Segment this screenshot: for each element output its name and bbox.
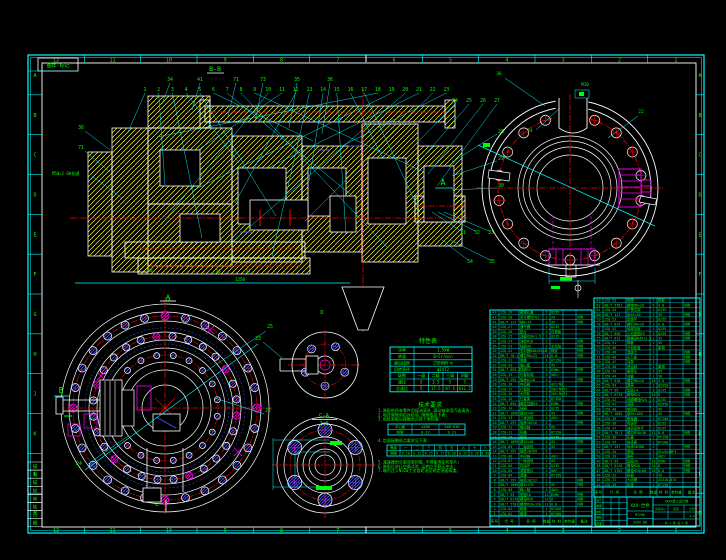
bom-cell: 2 [545,450,547,454]
bom-header-cell: 单件重 [671,490,682,495]
bom-cell: 16 [651,393,655,397]
tech-table-cell: 侧隙 [390,451,397,456]
bom-cell: 40Cr [551,488,559,492]
bom-cell: JZQ-11 [500,431,512,435]
bom-cell: 45 [596,478,600,482]
zone-letter-left: D [33,192,36,198]
bom-cell: 3 [545,387,547,391]
bom-cell: 1 [545,426,547,430]
binding-strip-cell: 期 [33,521,38,527]
bom-cell: 5 [493,493,495,497]
bom-cell: 79 [596,318,600,322]
bom-cell: 49 [596,459,600,463]
part-callout: 11 [279,87,285,93]
part-callout: 13 [307,87,313,93]
bom-cell: 17 [492,435,496,439]
bom-cell: JZQ-39 [604,417,616,421]
bom-cell: GB/T 5782 [604,469,622,473]
bom-cell: 1 [652,417,654,421]
bom-cell: 27 [492,387,496,391]
bom-cell: QT450 [551,397,561,401]
bom-cell: 45 [658,407,662,411]
bom-cell: 45 [551,440,555,444]
bom-cell: 毡圈40 [520,343,531,348]
bom-cell: 外购 [577,343,583,348]
bom-cell: 油泵 [627,359,634,364]
bom-cell: 45 [658,412,662,416]
bom-cell: 52 [596,445,600,449]
bom-cell: 40Cr [551,373,559,377]
bom-cell: 43 [492,311,496,315]
tech-table-cell: 五 [450,446,454,450]
char-cell: 速比 [398,379,406,385]
bom-cell: 74 [596,341,600,345]
zone-letter-left: A [33,73,36,79]
bom-cell: 1 [545,474,547,478]
bom-cell: 3 [652,322,654,326]
bom-cell: GB/T 95 [604,388,618,392]
bom-cell: 45 [551,426,555,430]
bom-cell: GB/T 819 [604,322,620,326]
big-view-c-label: C [155,500,159,508]
bom-cell: 挡圈 [520,406,527,411]
bom-cell: JZQ-17 [500,387,512,391]
bom-cell: 1 [652,360,654,364]
bom-cell: 12 [544,493,548,497]
char-cell: 二级 [432,372,440,378]
bom-cell: 10 [492,469,496,473]
bom-cell: 轴承30212 [520,477,537,482]
bom-cell: 1 [652,346,654,350]
bom-cell: 12 [544,498,548,502]
bom-cell: 2 [652,445,654,449]
bom-cell: 1 [545,402,547,406]
bom-cell: 1 [545,325,547,329]
bom-cell: 64 [596,388,600,392]
bom-cell: 20CrMnTi [551,392,567,396]
bom-cell: 6 [652,303,654,307]
bom-cell: 键16×90 [520,410,534,415]
bom-cell: GB/T 5781 [604,303,622,307]
bom-cell: JZQ-02 [500,507,512,511]
bom-cell: 2 [493,507,495,511]
bom-cell: 1 [652,403,654,407]
bom-cell: 橡胶 [551,348,558,353]
bom-cell: 1 [652,365,654,369]
bom-cell: Q235 [551,464,559,468]
bom-cell: 1 [652,407,654,411]
bom-cell: HT200 [551,512,561,516]
bom-cell: HT150 [551,431,561,435]
bom-cell: 35 [658,336,662,340]
char-cell: 5 [449,380,452,385]
bom-cell: 1 [545,397,547,401]
bom-cell: 1 [545,416,547,420]
bom-cell: Q235 [658,332,666,336]
bom-cell: 羊毛毡 [551,343,562,348]
bom-cell: JZQ-24 [500,339,512,343]
bom-cell: GB/T 1096 [604,412,622,416]
bom-cell: 12 [544,502,548,506]
bom-cell: 箱盖 [520,506,527,511]
part-callout: 16 [348,87,354,93]
part-callout: 7 [226,87,229,93]
bom-cell: 1 [545,454,547,458]
char-cell: 87.5 [445,386,455,391]
bom-cell: 圆螺母M45×1.5 [627,335,651,340]
sheet-count: 共 1 张 第 1 张 [665,521,688,525]
bom-cell: 67 [596,374,600,378]
bom-cell: 78 [596,322,600,326]
tech-table-cell: 四 [439,446,443,450]
title-row-label: 校核 [596,510,602,514]
bom-cell: JZQ-34 [604,450,616,454]
bom-cell: 1 [652,299,654,303]
bom-cell: 2 [652,318,654,322]
bom-cell: Q235 [658,388,666,392]
bom-cell: 轴端挡板 [627,326,641,331]
bom-cell: 外购 [684,378,690,383]
bom-cell: GB/T 812 [604,336,620,340]
bom-cell: 外购 [684,302,690,307]
zone-letter-left: H [33,352,36,358]
bom-cell: 垫圈20 [627,458,638,463]
bom-cell: 65 [596,384,600,388]
zone-number-top: 1 [674,58,677,64]
bom-cell: 45 [551,411,555,415]
bom-cell: 38 [492,335,496,339]
bom-cell: JZQ-50 [604,346,616,350]
bom-cell: 1 [652,450,654,454]
bom-cell: 紫铜 [658,345,665,350]
bom-cell: GB/T 6170 [604,393,622,397]
zone-number-bottom: 5 [449,528,452,534]
flange-dir-label: A [441,178,446,187]
char-table-title: 特性表 [419,337,437,345]
char-cell: 17.5 [431,386,441,391]
bom-cell: JZQ-12 [500,426,512,430]
bom-cell: 垫圈24 [627,387,638,392]
part-callout: 36 [496,71,502,77]
part-callout: 71 [233,77,239,83]
bom-cell: 螺钉M10×30 [627,430,646,435]
bom-cell: JZQ-52 [604,327,616,331]
bom-cell: 65Mn [551,368,559,372]
bom-cell: 7 [493,483,495,487]
zone-number-bottom: 10 [166,528,172,534]
zone-letter-left: E [33,232,36,238]
bom-cell: JZQ-22 [500,349,512,353]
bom-cell: 止动垫圈45 [627,331,645,336]
bom-cell: 外购 [577,348,583,353]
bom-cell: JZQ-06 [500,464,512,468]
bom-cell: 外购 [577,420,583,425]
binding-strip-cell: 描 [33,463,38,470]
bom-cell: 16 [651,464,655,468]
bom-cell: 1 [545,363,547,367]
zone-number-bottom: 12 [53,528,59,534]
zone-letter-right: C [698,153,701,159]
tech-table-cell: 等级 [390,445,397,450]
bom-cell: GB/T 5782 [500,502,518,506]
bom-cell: 1 [545,431,547,435]
bom-cell: 45 [551,363,555,367]
bom-cell: 2 [652,436,654,440]
bom-cell: 12 [492,459,496,463]
bom-cell: 8 [658,393,660,397]
zone-letter-right: E [698,232,701,238]
bom-cell: 35 [658,370,662,374]
bom-cell: 外购 [577,482,583,487]
bom-cell: 外购 [684,392,690,397]
char-cell: 转速 [398,353,406,359]
tech-table-cell: 0.30 [481,452,489,456]
bom-cell: 垫圈16 [520,492,531,497]
zone-number-top: 9 [224,58,227,64]
bom-cell: GB/T 1096 [500,483,518,487]
bom-cell: GB/T 6170 [604,464,622,468]
bom-tables: 1JZQ-01箱体1HT2002JZQ-02箱盖1HT2003GB/T 5782… [490,298,700,526]
bom-cell: 40Cr [658,455,666,459]
bom-cell: 2 [652,440,654,444]
tech-table-cell: 二 [416,446,420,450]
char-cell: 5 [420,386,423,391]
bom-cell: 35 [658,313,662,317]
bom-cell: 1 [652,327,654,331]
bom-cell: 1 [652,384,654,388]
zone-number-bottom: 2 [618,528,621,534]
bom-cell: 47 [596,469,600,473]
bom-cell: 2 [652,313,654,317]
part-callout: 9 [253,87,256,93]
detail-title: C-A [319,413,330,419]
bom-cell: JZQ-38 [604,422,616,426]
bom-cell: HT150 [658,436,668,440]
bom-cell: Q235 [658,426,666,430]
bom-cell: 34 [492,354,496,358]
bom-cell: 2 [652,370,654,374]
binding-strip-cell: 核 [33,504,38,511]
bom-cell: 蜗轮 [627,449,634,454]
bom-cell: 轴承30209 [520,449,537,454]
tech-note-line: 7.箱内注入N320工业齿轮油至规定油面高度。 [378,467,460,473]
part-callout: 34 [167,77,173,83]
part-callout: 14 [320,87,326,93]
bom-cell: 螺栓M8×20 [627,302,644,307]
bom-cell: 20 [492,421,496,425]
bom-cell: 外购 [684,430,690,435]
zone-number-top: 2 [618,58,621,64]
main-section-view: 1234567891011121314151617181920212223344… [52,77,504,332]
tech-table-cell: 三 [427,446,431,450]
bom-cell: 1 [652,474,654,478]
bom-cell: GB/T 1096 [500,440,518,444]
char-cell: 功率 [398,347,406,353]
bom-cell: 4.8 [658,379,664,383]
bom-cell: 铝板 [658,298,665,303]
bom-cell: 8.8 [551,354,557,358]
bom-cell: JZQ-26 [500,330,512,334]
title-row-label: 批准 [596,521,602,525]
char-cell: φ1472 [437,367,450,372]
bom-cell: 71 [596,355,600,359]
bom-cell: 1 [652,351,654,355]
zone-number-bottom: 6 [393,528,396,534]
bom-cell: 轴承座 [627,439,638,444]
bom-cell: 77 [596,327,600,331]
bom-cell: JZQ-54 [604,308,616,312]
bom-cell: 65Mn [658,459,666,463]
bom-cell: 箱体 [520,511,527,516]
bom-cell: 外购 [577,501,583,506]
bom-cell: 24 [492,402,496,406]
bom-header-cell: 单件重 [564,519,575,524]
zone-number-bottom: 11 [109,528,115,534]
bom-cell: 弹性挡圈45 [520,401,538,406]
bom-cell: 4.8 [658,322,664,326]
bom-cell: 一级齿轮 [520,458,534,463]
bom-cell: Q235 [551,335,559,339]
bom-cell: 螺钉M6×20 [627,321,644,326]
bom-cell: JZQ-36 [604,436,616,440]
bom-cell: 外购 [577,477,583,482]
part-callout: 4 [185,87,188,93]
bom-cell: 8 [493,478,495,482]
bom-cell: 联轴器 [627,416,638,421]
bom-cell: JZQ-42 [604,398,616,402]
tech-table-cell: 八 [484,446,488,450]
part-callout: 5 [198,87,201,93]
cad-canvas[interactable]: 121110987654321121110987654321ABCDEFGHJK… [0,0,726,560]
bom-cell: 螺母M24 [627,392,640,397]
bom-cell: 螺栓M20×80 [627,468,646,473]
bom-cell: 36 [492,344,496,348]
part-callout: 24 [452,98,458,104]
bom-cell: 外购 [684,359,690,364]
bom-cell: 8.8 [551,502,557,506]
bom-cell: 挡油环 [520,463,531,468]
bom-cell: 销8×35 [520,319,532,324]
bom-cell: 10 [658,374,662,378]
top-note: M10 [581,82,589,87]
bom-cell: 1 [545,440,547,444]
bom-cell: 18 [492,431,496,435]
bom-cell: 2 [545,478,547,482]
bom-cell: GB/T 893.1 [500,368,520,372]
bom-cell: 外购 [577,319,583,324]
bom-cell: 70 [596,360,600,364]
bom-cell: GB/T 6170 [500,498,518,502]
bom-cell: 2 [545,320,547,324]
bom-cell: 1 [545,445,547,449]
part-callout: 73 [260,77,266,83]
bom-cell: 2 [652,308,654,312]
bom-cell: 行星轮 [520,386,531,391]
bom-cell: 压盖 [627,435,634,440]
part-callout: 19 [389,87,395,93]
zone-number-top: 6 [393,58,396,64]
bom-cell: 23 [492,407,496,411]
binding-strip-cell: 校 [33,487,38,494]
title-row-label: 制图 [596,504,602,508]
bom-cell: JZQ-13 [500,416,512,420]
bom-cell: 58 [596,417,600,421]
bom-cell: 油塞M20×1.5 [520,334,541,339]
bom-cell: Q235 [658,308,666,312]
bom-cell: 12 [651,431,655,435]
bom-cell: Q235 [658,327,666,331]
bom-cell: JZQ-37 [604,426,616,430]
bom-cell: 输出轴 [520,425,531,430]
bom-cell: 16 [651,469,655,473]
bom-cell: 65Mn [551,493,559,497]
bom-cell: 1 [545,512,547,516]
bom-cell: JZQ-03 [500,488,512,492]
bom-cell: 太阳轮 [520,391,531,396]
bom-cell: 8.8 [658,469,664,473]
zone-letter-left: G [33,312,36,318]
bom-cell: 44 [596,483,600,487]
tech-table-cell: 0.17 [436,452,444,456]
bom-header-cell: 序号 [491,519,499,524]
bom-cell: 26 [492,392,496,396]
bom-cell: Q235A [658,403,668,407]
bom-cell: Q235 [551,435,559,439]
binding-strip-cell: 描 [33,479,38,486]
bom-cell: 二级齿轮 [520,444,534,449]
bom-cell: JZQ-55 [604,299,616,303]
binding-strip-cell: 审 [33,495,38,502]
bom-cell: 1 [545,339,547,343]
bom-cell: 2 [545,344,547,348]
bom-cell: 石棉板 [551,329,562,334]
bom-cell: JZQ-21 [500,359,512,363]
tech-table-cell: 中心距 [395,424,406,429]
bom-cell: 管接头 [627,369,638,374]
bom-cell: 外购 [577,367,583,372]
tech-table-cell: 0.22 [459,452,467,456]
bom-cell: 2 [652,332,654,336]
zone-number-bottom: 1 [674,528,677,534]
part-callout: 41 [197,77,203,83]
bom-cell: JZQ-33 [604,455,616,459]
bom-header-cell: 代 号 [504,519,514,524]
part-callout: 21 [416,87,422,93]
bom-cell: Q235 [551,407,559,411]
bom-cell: 1 [545,335,547,339]
bom-cell: 45 [658,474,662,478]
bom-cell: GB/T 297 [500,478,516,482]
bom-cell: 11 [492,464,496,468]
bom-cell: Q235 [551,325,559,329]
bom-cell: 外购 [684,350,690,355]
bom-cell: 密封圈B40×62×8 [520,348,547,353]
tech-note-line: 4.齿面接触斑点要求见下表: [378,437,429,443]
bom-cell: 外购 [684,335,690,340]
part-callout: 22 [265,408,271,414]
bom-cell: 15 [492,445,496,449]
binding-strip-cell: 图 [33,472,38,478]
part-callout: 25 [466,98,472,104]
bom-cell: JZQ-29 [500,311,512,315]
bom-cell: 32 [492,363,496,367]
bom-cell: 08F [551,469,557,473]
bom-cell: JZQ-44 [604,374,616,378]
zone-letter-left: C [33,153,36,159]
bom-cell: 外购 [684,468,690,473]
bom-cell: JZQ-45 [604,370,616,374]
bom-cell: JZQ-20 [500,363,512,367]
